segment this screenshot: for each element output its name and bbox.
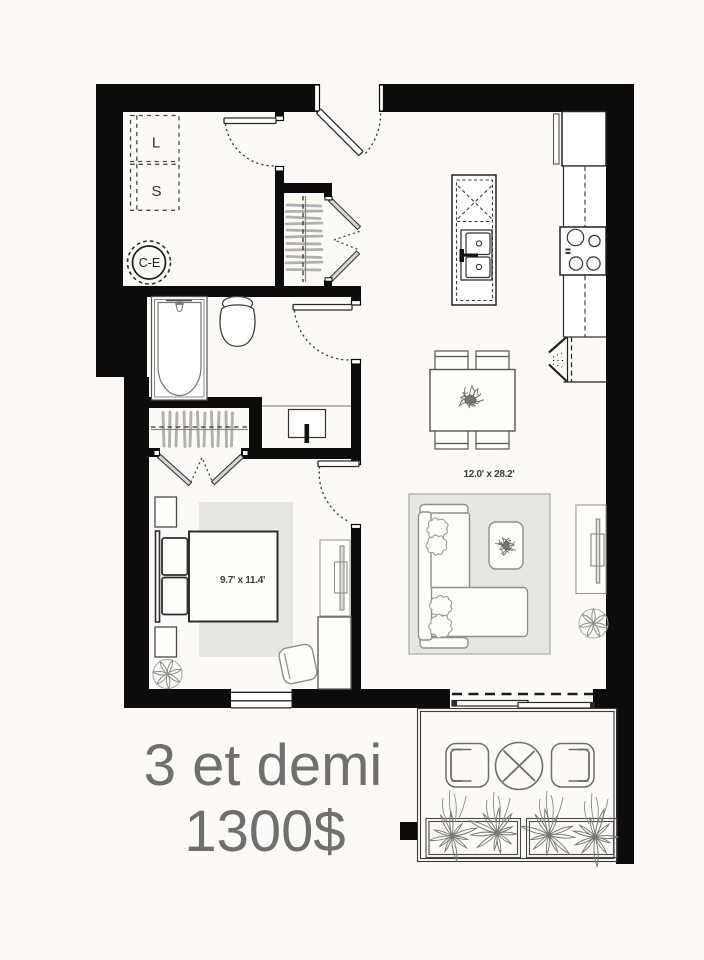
svg-text:S: S [151, 183, 161, 200]
svg-text:3 et demi: 3 et demi [144, 733, 383, 798]
svg-text:9.7' x 11.4': 9.7' x 11.4' [220, 575, 265, 586]
svg-text:C-E: C-E [139, 256, 161, 270]
svg-text:1300$: 1300$ [184, 799, 345, 864]
svg-text:L: L [152, 135, 160, 152]
svg-text:12.0' x 28.2': 12.0' x 28.2' [464, 469, 515, 480]
